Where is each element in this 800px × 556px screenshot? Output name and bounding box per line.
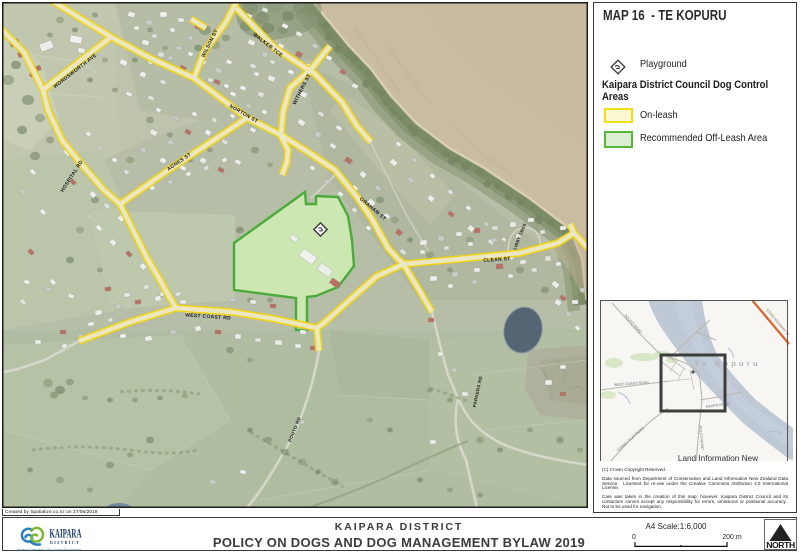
svg-text:Kaipara te Oranganui • Two Oc: Kaipara te Oranganui • Two Oceans Two Ha… [17, 548, 82, 552]
svg-text:NORTH: NORTH [766, 540, 795, 549]
svg-text:DISTRICT: DISTRICT [50, 540, 80, 545]
svg-text:KAIPARA: KAIPARA [50, 527, 82, 541]
svg-text:0: 0 [632, 534, 636, 541]
svg-text:Land Information New: Land Information New [678, 454, 758, 461]
svg-text:200 m: 200 m [722, 534, 742, 541]
svg-text:Te Kopuru: Te Kopuru [695, 359, 761, 368]
